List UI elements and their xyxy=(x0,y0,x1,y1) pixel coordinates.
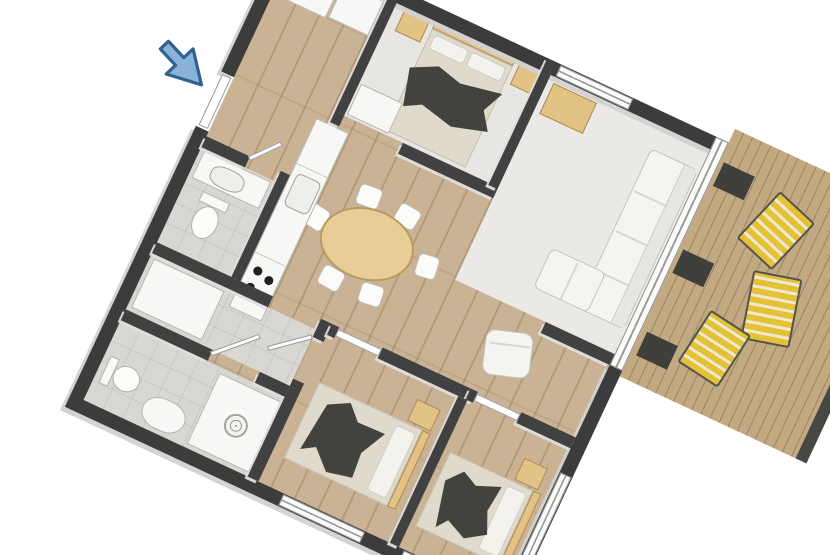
armchair xyxy=(481,328,534,380)
shower-drain-icon xyxy=(220,410,252,442)
hob-burner-1 xyxy=(252,265,264,277)
hob-burner-2 xyxy=(263,275,275,287)
floor-plan-canvas xyxy=(0,0,830,555)
apartment-plan xyxy=(38,0,830,555)
